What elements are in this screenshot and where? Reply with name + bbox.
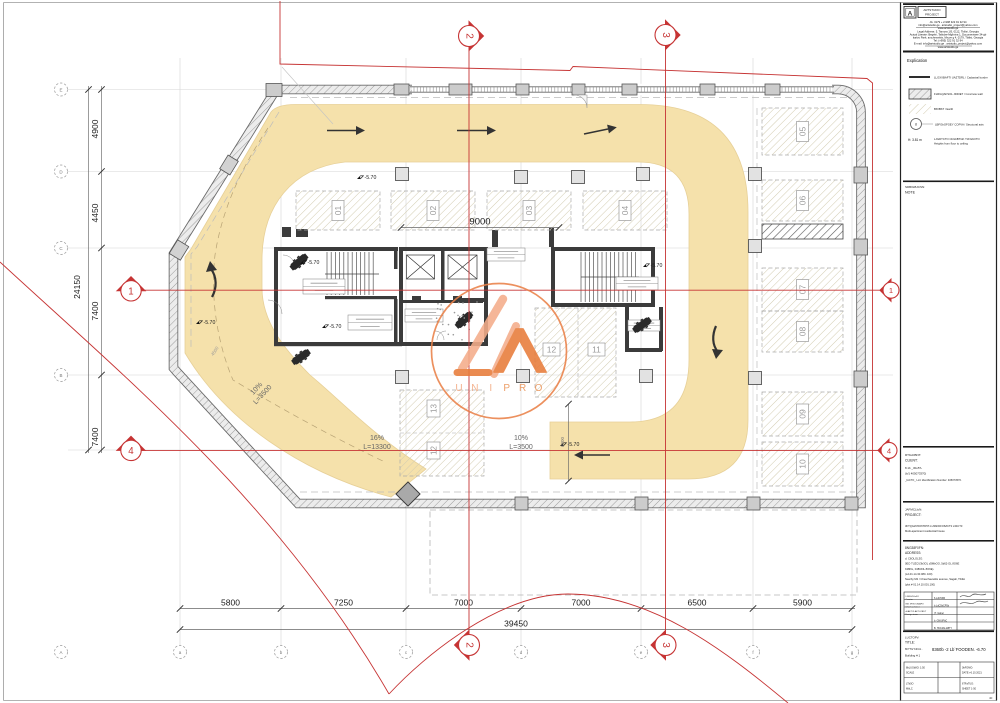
svg-text:01: 01 bbox=[333, 206, 343, 216]
svg-text:08: 08 bbox=[798, 327, 808, 337]
svg-text:12: 12 bbox=[547, 345, 557, 355]
svg-text:d. C6OLOL3O.: d. C6OLOL3O. bbox=[905, 556, 923, 560]
svg-text:6TFaTUO:: 6TFaTUO: bbox=[962, 683, 974, 686]
svg-text:24150: 24150 bbox=[72, 275, 82, 299]
svg-text:www.artstudio.ge: www.artstudio.ge bbox=[938, 45, 959, 49]
svg-text:10: 10 bbox=[798, 459, 808, 469]
svg-text:LJGDTCTO CbGbBTGK TJFGbOTO: LJGDTCTO CbGbBTGK TJFGbOTO bbox=[934, 137, 981, 141]
svg-text:A: A bbox=[908, 10, 913, 17]
svg-text:SHEET 1-50: SHEET 1-50 bbox=[962, 688, 977, 691]
svg-text:05: 05 bbox=[798, 127, 808, 137]
svg-text:(Ld-01.14.30.080..100): (Ld-01.14.30.080..100) bbox=[905, 572, 932, 576]
svg-text:NOTE: NOTE bbox=[905, 191, 916, 195]
svg-text:b. GNUIFbC: b. GNUIFbC bbox=[934, 620, 947, 623]
svg-text:-5.70: -5.70 bbox=[651, 263, 663, 269]
svg-text:3FTQGZC5O6TD5T-LU3bFDFO6ZCT3 L: 3FTQGZC5O6TD5T-LU3bFDFO6ZCT3 L3bCT3 bbox=[905, 524, 963, 528]
svg-text:O: O bbox=[535, 383, 543, 394]
svg-text:-5.70: -5.70 bbox=[330, 324, 342, 330]
svg-text:07: 07 bbox=[798, 285, 808, 295]
svg-text:PROJECT:: PROJECT: bbox=[905, 513, 921, 517]
svg-text:3: 3 bbox=[660, 32, 671, 38]
svg-text:02: 02 bbox=[428, 206, 438, 216]
svg-text:03: 03 bbox=[524, 206, 534, 216]
svg-text:2: 2 bbox=[464, 33, 475, 39]
svg-text:11: 11 bbox=[592, 345, 601, 355]
svg-text:SCALE: SCALE bbox=[906, 672, 915, 675]
svg-text:8.1b _30o5"L: 8.1b _30o5"L bbox=[905, 466, 922, 470]
svg-text:B: B bbox=[59, 373, 62, 378]
svg-text:16%: 16% bbox=[370, 435, 384, 442]
svg-text:SDBIGBJCSN:: SDBIGBJCSN: bbox=[905, 185, 925, 189]
svg-text:LUCTOPV:: LUCTOPV: bbox=[905, 636, 919, 640]
svg-text:LBFGbOFGEY COFVA / Structural: LBFGbOFGEY COFVA / Structural axis bbox=[935, 122, 984, 126]
svg-text:1: 1 bbox=[889, 286, 893, 295]
svg-text:13: 13 bbox=[430, 404, 439, 413]
svg-text:MbLC: MbLC bbox=[906, 688, 913, 691]
svg-text:8M. 3FtIOC9dAFO: 8M. 3FtIOC9dAFO bbox=[906, 603, 925, 606]
svg-text:04: 04 bbox=[620, 206, 630, 216]
svg-text:TITLE:: TITLE: bbox=[905, 641, 915, 645]
svg-text:7000: 7000 bbox=[572, 598, 591, 608]
svg-text:7400: 7400 bbox=[90, 427, 100, 446]
svg-text:4: 4 bbox=[128, 446, 134, 457]
svg-text:BfOBST / Earth: BfOBST / Earth bbox=[934, 107, 954, 111]
svg-text:DATE +6.10.2021: DATE +6.10.2021 bbox=[962, 672, 982, 675]
svg-text:H: 3.81 m: H: 3.81 m bbox=[908, 138, 922, 142]
svg-text:-5.70: -5.70 bbox=[308, 260, 320, 266]
svg-text:8O"TG"b3/41..: 8O"TG"b3/41.. bbox=[905, 647, 923, 651]
svg-text:5800: 5800 bbox=[221, 598, 240, 608]
svg-text:2: 2 bbox=[464, 642, 475, 648]
svg-text:P: P bbox=[503, 383, 510, 394]
svg-text:Explication: Explication bbox=[907, 58, 928, 63]
svg-text:39450: 39450 bbox=[504, 619, 528, 629]
svg-text:U: U bbox=[455, 383, 462, 394]
svg-text:I: I bbox=[489, 383, 492, 394]
svg-text:0bFOMO:: 0bFOMO: bbox=[962, 667, 973, 670]
svg-text:Multi-apartment residential ho: Multi-apartment residential house bbox=[905, 529, 945, 533]
svg-text:JAFMCLIoN:: JAFMCLIoN: bbox=[905, 508, 922, 512]
svg-text:ADDRESS:: ADDRESS: bbox=[905, 551, 921, 555]
svg-text:06: 06 bbox=[798, 196, 808, 206]
svg-text:LLGXXBAFTI UAZTDRL / Cadastr: LLGXXBAFTI UAZTDRL / Cadastral border bbox=[934, 76, 988, 80]
svg-text:(plot # 01.14.10.001.100): (plot # 01.14.10.001.100) bbox=[905, 582, 935, 586]
svg-text:8NG38F0FN:: 8NG38F0FN: bbox=[905, 546, 924, 550]
svg-text:09: 09 bbox=[798, 409, 808, 419]
svg-text:(b/1 405073370): (b/1 405073370) bbox=[905, 472, 926, 476]
svg-text:40: 40 bbox=[989, 696, 993, 700]
svg-text:LFMGZLIaFO: LFMGZLIaFO bbox=[906, 596, 920, 598]
svg-text:CLIENT:: CLIENT: bbox=[905, 459, 918, 463]
svg-text:LTb0O: LTb0O bbox=[906, 683, 914, 686]
svg-text:E: E bbox=[59, 88, 62, 93]
svg-text:R: R bbox=[519, 383, 526, 394]
svg-text:Nearby M2 / Chavchavadze avenu: Nearby M2 / Chavchavadze avenue, Sagali,… bbox=[905, 577, 965, 581]
svg-text:8360b -2 Lb`FOODEN. -6.70: 8360b -2 Lb`FOODEN. -6.70 bbox=[932, 647, 986, 652]
svg-text:B. HCb2bLId8TY: B. HCb2bLId8TY bbox=[934, 627, 952, 630]
svg-text:-5.70: -5.70 bbox=[568, 442, 580, 448]
svg-text:_IACTO_ LLC Identification N: _IACTO_ LLC Identification Number: 40507… bbox=[904, 478, 962, 482]
svg-text:7400: 7400 bbox=[90, 301, 100, 320]
svg-text:RTbLDBNT:: RTbLDBNT: bbox=[905, 453, 921, 457]
svg-text:-5.70: -5.70 bbox=[365, 175, 377, 181]
svg-text:Creator: Creator bbox=[906, 598, 914, 601]
svg-text:0EO TUZCU3b3OL d3MbOO, 5d62-OL: 0EO TUZCU3b3OL d3MbOO, 5d62-OL 8O6E bbox=[905, 562, 959, 566]
svg-text:FLRGQAFSOL JDDIET / Concret: FLRGQAFSOL JDDIET / Concrete wall bbox=[934, 92, 983, 96]
svg-text:6000: 6000 bbox=[560, 436, 565, 447]
svg-text:b.LdC5bCP5b: b.LdC5bCP5b bbox=[934, 605, 950, 608]
svg-text:PROJECT: PROJECT bbox=[925, 13, 939, 17]
svg-text:10%: 10% bbox=[514, 435, 528, 442]
svg-text:ARTSTUDIO: ARTSTUDIO bbox=[923, 8, 941, 12]
svg-text:6500: 6500 bbox=[688, 598, 707, 608]
svg-text:3: 3 bbox=[660, 642, 671, 648]
svg-text:dLAFTCLAFT-ICBDT: dLAFTCLAFT-ICBDT bbox=[906, 610, 927, 613]
svg-text:(T. Gabel: (T. Gabel bbox=[934, 612, 944, 615]
svg-text:8bLUGb8O: 1:50: 8bLUGb8O: 1:50 bbox=[906, 667, 926, 670]
svg-text:4450: 4450 bbox=[90, 203, 100, 222]
svg-text:A: A bbox=[59, 650, 62, 655]
svg-text:7000: 7000 bbox=[454, 598, 473, 608]
svg-text:4: 4 bbox=[887, 446, 891, 455]
svg-text:Design team: Design team bbox=[906, 613, 918, 616]
svg-text:9000: 9000 bbox=[469, 217, 490, 228]
svg-text:5900: 5900 bbox=[793, 598, 812, 608]
svg-text:Chief architect: Chief architect bbox=[906, 605, 920, 608]
svg-text:N: N bbox=[471, 383, 478, 394]
svg-text:Heights from floor to ceiling: Heights from floor to ceiling bbox=[934, 142, 968, 146]
svg-text:7250: 7250 bbox=[334, 598, 353, 608]
svg-text:-5.70: -5.70 bbox=[204, 320, 216, 326]
svg-text:6.LdC53M: 6.LdC53M bbox=[934, 597, 945, 600]
svg-text:4900: 4900 bbox=[90, 119, 100, 138]
svg-text:b38I6L, b38I3OL 8O6E).: b38I6L, b38I3OL 8O6E). bbox=[905, 567, 934, 571]
svg-text:Building # 1: Building # 1 bbox=[905, 654, 920, 658]
svg-text:1: 1 bbox=[128, 286, 133, 297]
